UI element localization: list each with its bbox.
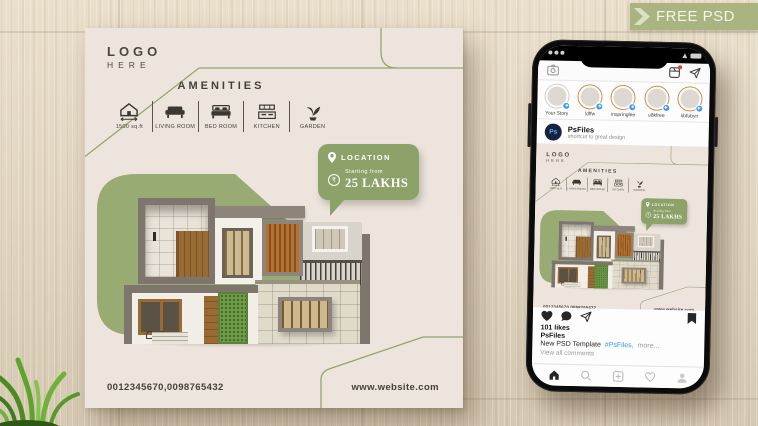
view-all-comments-link[interactable]: View all comments <box>540 349 696 359</box>
location-row: LOCATION <box>646 202 683 208</box>
story-item[interactable]: fdffw <box>573 83 607 117</box>
house-green-wall <box>594 265 608 289</box>
amenity-label: 1500 sq.ft <box>550 187 562 190</box>
phone-notch <box>580 46 668 69</box>
ribbon-arrow-icon <box>634 8 650 25</box>
amenity-area: 1500 sq.ft <box>546 177 567 192</box>
poster-mini: LOGO HERE AMENITIES 1500 sq.ft <box>533 143 708 311</box>
post-header: Ps PsFiles shortcut to great design <box>537 119 709 147</box>
free-psd-ribbon: FREE PSD <box>630 3 758 30</box>
website-url: www.website.com <box>352 382 439 393</box>
story-label: Your Story <box>545 110 568 116</box>
post-header-text: PsFiles shortcut to great design <box>568 124 626 140</box>
amenity-label: BED ROOM <box>590 188 605 191</box>
logo-line1: LOGO <box>546 151 571 158</box>
house-upper-window <box>638 235 655 247</box>
phone-mockup: Your Story fdffw inspringlee <box>525 39 716 395</box>
phone-numbers: 0012345670,0098765432 <box>107 382 224 393</box>
house-upper-wood-door <box>176 231 209 277</box>
deco-line-corner <box>381 28 397 68</box>
wood-seam <box>430 398 758 400</box>
house-upper-left-block <box>558 221 594 261</box>
amenity-label: BED ROOM <box>205 124 237 130</box>
price-text: Starting from 25 LAKHS <box>653 210 682 221</box>
scene: FREE PSD LOGO HERE AMENITIES 1 <box>0 0 758 426</box>
amenity-kitchen: KITCHEN <box>608 178 629 193</box>
house-wall-lamp <box>565 237 566 241</box>
avatar[interactable]: Ps <box>545 123 562 140</box>
like-icon[interactable] <box>541 310 553 321</box>
amenity-label: GARDEN <box>300 124 325 130</box>
nav-add-post-icon[interactable] <box>612 371 623 382</box>
amenity-living-room: LIVING ROOM <box>152 101 198 132</box>
battery-icon <box>690 53 701 58</box>
house-upper-right-wall <box>632 234 661 263</box>
poster-logo: LOGO HERE <box>546 151 571 163</box>
bottom-nav <box>531 363 703 389</box>
direct-message-icon[interactable] <box>689 67 701 78</box>
house-tower-window <box>222 228 253 278</box>
amenity-label: 1500 sq.ft <box>116 124 143 130</box>
price-value: 25 LAKHS <box>653 213 682 220</box>
caption-more-link[interactable]: more... <box>638 342 660 349</box>
story-ring <box>578 84 604 110</box>
post-text-block: 101 likes PsFiles New PSD Template #PsFi… <box>532 323 705 367</box>
poster: LOGO HERE AMENITIES 1500 sq.ft <box>85 28 463 408</box>
amenity-garden: GARDEN <box>628 178 649 193</box>
house-center-tower <box>592 231 615 261</box>
amenity-kitchen: KITCHEN <box>243 101 289 132</box>
amenity-bed-room: BED ROOM <box>198 101 244 132</box>
amenities-section: AMENITIES 1500 sq.ft <box>546 167 650 193</box>
poster-logo: LOGO HERE <box>107 44 161 70</box>
price-row: ₹ Starting from 25 LAKHS <box>646 210 683 221</box>
story-ring <box>677 86 703 112</box>
amenities-title: AMENITIES <box>546 167 650 175</box>
igtv-icon[interactable] <box>669 67 680 78</box>
user-tagline: shortcut to great design <box>568 133 626 140</box>
house-area-icon <box>118 103 140 121</box>
avatar-text: Ps <box>549 128 557 135</box>
amenity-label: LIVING ROOM <box>567 188 585 191</box>
house-slat-panel <box>615 232 634 258</box>
story-add-icon <box>596 102 604 110</box>
bookmark-icon[interactable] <box>687 312 697 324</box>
story-item[interactable]: u8kfree <box>640 85 674 119</box>
kitchen-icon <box>256 103 278 121</box>
amenity-label: GARDEN <box>633 189 645 192</box>
phone-screen: Your Story fdffw inspringlee <box>531 45 710 389</box>
location-badge: LOCATION ₹ Starting from 25 LAKHS <box>318 144 419 200</box>
story-item[interactable]: inspringlee <box>607 84 641 118</box>
story-ring <box>544 83 570 109</box>
top-bar-spacer <box>568 70 660 72</box>
amenity-area: 1500 sq.ft <box>107 101 152 132</box>
logo-line2: HERE <box>546 158 571 163</box>
grass-plant <box>0 348 86 426</box>
house-lower-right-wall <box>255 280 360 344</box>
location-pin-icon <box>646 202 650 207</box>
rupee-icon: ₹ <box>646 212 652 218</box>
house-lower-window <box>278 297 332 332</box>
kitchen-icon <box>613 179 623 187</box>
house-upper-wood-door <box>576 236 591 257</box>
story-label: u8kfree <box>648 112 665 118</box>
house-lower-right-wall <box>611 259 659 289</box>
comment-icon[interactable] <box>561 310 572 321</box>
logo-line1: LOGO <box>107 44 161 59</box>
rupee-icon: ₹ <box>328 174 340 186</box>
story-add-icon <box>562 101 570 109</box>
amenities-title: AMENITIES <box>107 80 335 92</box>
story-add-icon <box>695 104 703 112</box>
amenities-row: 1500 sq.ft LIVING ROOM <box>546 177 650 193</box>
price-value: 25 LAKHS <box>345 176 408 191</box>
status-indicators <box>682 53 701 58</box>
amenity-label: KITCHEN <box>612 188 624 191</box>
amenities-section: AMENITIES 1500 sq.ft <box>107 80 335 132</box>
nav-home-icon[interactable] <box>548 370 559 381</box>
house-center-tower <box>213 218 262 284</box>
status-time <box>548 50 564 54</box>
amenity-label: LIVING ROOM <box>155 124 195 130</box>
story-ring <box>611 84 637 110</box>
nav-activity-icon[interactable] <box>644 372 655 383</box>
location-pin-icon <box>328 152 336 163</box>
house-upper-left-block <box>138 198 215 284</box>
house-porch-window <box>138 299 182 335</box>
caption-hashtag[interactable]: #PsFiles, <box>605 342 634 350</box>
location-row: LOCATION <box>328 152 409 163</box>
actions-spacer <box>600 317 679 319</box>
story-ring <box>644 85 670 111</box>
house-area-icon <box>551 178 561 186</box>
amenity-living-room: LIVING ROOM <box>566 177 587 192</box>
house-green-wall <box>218 292 248 344</box>
ribbon-label: FREE PSD <box>656 8 735 25</box>
house-slat-panel <box>262 220 303 276</box>
logo-line2: HERE <box>107 60 161 70</box>
house-upper-window <box>312 226 348 252</box>
house-tower-window <box>596 236 611 259</box>
caption-text: New PSD Template <box>540 340 601 348</box>
story-item[interactable]: kbfubyn <box>673 86 707 120</box>
amenity-label: KITCHEN <box>254 124 280 130</box>
price-prefix: Starting from <box>345 169 408 175</box>
house-lower-window <box>621 267 646 283</box>
price-row: ₹ Starting from 25 LAKHS <box>328 169 409 191</box>
house-upper-right-wall <box>300 222 362 285</box>
story-item-your-story[interactable]: Your Story <box>540 83 574 117</box>
amenity-bed-room: BED ROOM <box>587 177 608 192</box>
location-label: LOCATION <box>652 203 675 208</box>
bed-icon <box>592 179 602 187</box>
nav-profile-icon[interactable] <box>676 372 687 383</box>
plant-icon <box>634 179 644 187</box>
wifi-icon <box>682 53 687 58</box>
notification-dot <box>678 65 682 69</box>
sofa-icon <box>572 178 582 186</box>
phone-post-media[interactable]: LOGO HERE AMENITIES 1500 sq.ft <box>533 143 708 311</box>
house-steps <box>564 282 580 288</box>
nav-search-icon[interactable] <box>580 370 591 381</box>
story-add-icon <box>662 103 670 111</box>
amenities-row: 1500 sq.ft LIVING ROOM <box>107 101 335 132</box>
location-badge: LOCATION ₹ Starting from 25 LAKHS <box>641 198 687 224</box>
price-text: Starting from 25 LAKHS <box>345 169 408 191</box>
story-label: inspringlee <box>611 111 635 118</box>
plant-icon <box>302 103 324 121</box>
amenity-garden: GARDEN <box>289 101 335 132</box>
location-label: LOCATION <box>341 153 391 162</box>
story-label: fdffw <box>585 111 596 117</box>
story-label: kbfubyn <box>681 113 699 119</box>
camera-icon[interactable] <box>547 64 559 75</box>
deco-line-corner <box>671 145 679 164</box>
stories-row: Your Story fdffw inspringlee <box>537 80 710 122</box>
share-icon[interactable] <box>580 311 592 322</box>
house-steps <box>152 332 188 344</box>
house-wall-lamp <box>153 232 156 241</box>
story-add-icon <box>629 103 637 111</box>
house-roof-slab <box>208 206 305 218</box>
sofa-icon <box>164 103 186 121</box>
bed-icon <box>210 103 232 121</box>
